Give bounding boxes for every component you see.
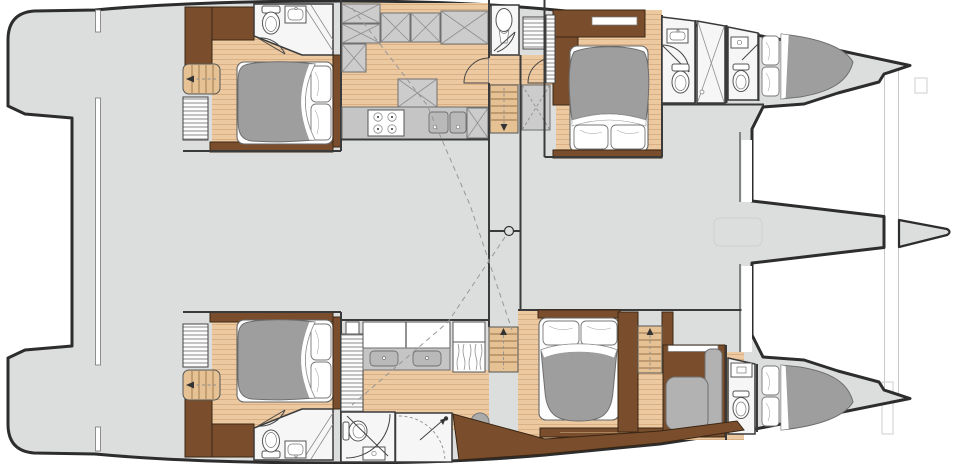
toilet-icon (262, 430, 280, 458)
floor-plan-canvas (0, 0, 958, 464)
vanity (363, 322, 450, 370)
double-bed (569, 46, 649, 152)
companionway-stairs (183, 64, 220, 94)
tall-wardrobe (618, 312, 638, 432)
bowsprit (899, 220, 950, 247)
catamaran-floor-plan (0, 0, 958, 464)
owner-bathroom (341, 412, 395, 462)
bow-fitting-top (915, 78, 927, 93)
toilet-icon (733, 64, 749, 92)
sofa (663, 345, 725, 437)
wardrobe (185, 7, 212, 70)
headboard (333, 317, 341, 409)
galley (341, 3, 489, 140)
side-gate (742, 140, 753, 202)
washbasin-icon (285, 441, 306, 458)
washbasin-icon (285, 6, 306, 23)
stairs-down (490, 85, 518, 133)
owner-shower (396, 413, 453, 462)
louver-locker (341, 334, 363, 414)
cabin-port-fwd (183, 312, 341, 461)
double-bed (237, 320, 333, 402)
cabinet (212, 424, 254, 457)
louver-locker (183, 97, 208, 140)
headboard-shelf (592, 17, 637, 25)
cabin-port-aft (183, 0, 341, 152)
companionway-stairs (183, 370, 220, 400)
hinge-dot (444, 416, 448, 420)
double-bed (237, 62, 333, 144)
owner-bed (538, 310, 620, 421)
stove-icon (368, 110, 404, 136)
wardrobe (185, 394, 212, 457)
cabinet (346, 322, 359, 334)
cabinet (212, 7, 254, 40)
door-knob-icon (505, 227, 514, 236)
bow-rigging (882, 70, 927, 434)
toilet-icon (262, 6, 280, 34)
louver-locker (183, 324, 208, 367)
seagull-striker-band (885, 70, 899, 395)
galley-sink-icon (429, 112, 466, 133)
side-gate (742, 266, 753, 352)
washbasin-icon (731, 37, 748, 48)
toilet-icon (672, 64, 689, 93)
cabin-starboard-aft (545, 10, 663, 158)
drain-icon (700, 90, 704, 94)
washbasin-icon (667, 29, 688, 43)
headboard (538, 310, 620, 318)
headboard (333, 55, 341, 147)
hanging-wardrobe (453, 322, 485, 372)
stairs-down (489, 327, 518, 372)
bathrooms-starboard-fwd (662, 17, 764, 105)
stairs-up (638, 326, 662, 373)
louver-locker (546, 15, 555, 83)
